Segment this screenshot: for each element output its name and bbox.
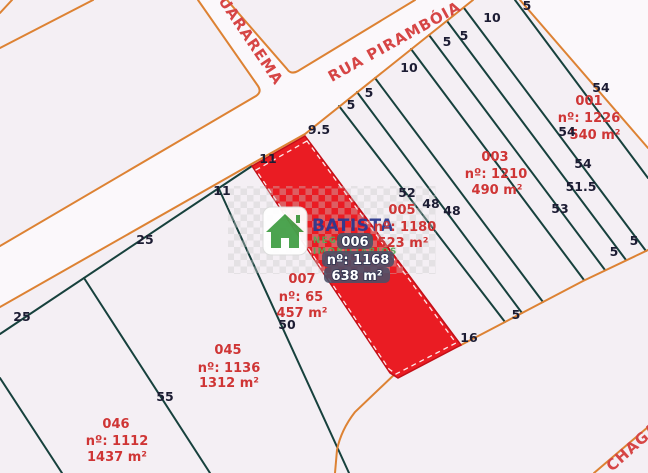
dim-label: 25 <box>136 232 153 247</box>
dim-label: 54 <box>592 80 610 95</box>
dim-label: 25 <box>13 309 30 324</box>
dim-label: 52 <box>398 185 415 200</box>
dim-label: 5 <box>460 28 469 43</box>
svg-text:540 m²: 540 m² <box>570 128 621 143</box>
dim-label: 54 <box>574 156 592 171</box>
dim-label: 10 <box>400 60 418 75</box>
dim-label: 10 <box>483 10 501 25</box>
svg-text:003: 003 <box>481 150 508 165</box>
svg-text:1437 m²: 1437 m² <box>87 450 147 465</box>
svg-text:523 m²: 523 m² <box>378 236 429 251</box>
dim-label: 5 <box>512 307 521 322</box>
dim-label: 11 <box>259 151 276 166</box>
svg-text:005: 005 <box>388 203 415 218</box>
cadastral-map: BATISTA NEGÓCIOS IMOBILIÁRIOS GUARAREMA … <box>0 0 648 473</box>
dim-label: 51.5 <box>566 179 597 194</box>
dim-label: 5 <box>630 233 639 248</box>
dim-label: 11 <box>213 183 230 198</box>
svg-text:nº: 65: nº: 65 <box>279 290 323 305</box>
dim-label: 5 <box>347 97 356 112</box>
dim-label: 55 <box>156 389 173 404</box>
dim-label: 5 <box>365 85 374 100</box>
dim-label: 16 <box>460 330 478 345</box>
svg-text:nº: 1168: nº: 1168 <box>327 253 390 268</box>
svg-text:1312 m²: 1312 m² <box>199 376 259 391</box>
dim-label: 5 <box>610 244 619 259</box>
svg-text:nº: 1180: nº: 1180 <box>374 220 437 235</box>
dim-label: 54 <box>558 124 576 139</box>
svg-text:046: 046 <box>102 417 129 432</box>
dim-label: 5 <box>443 34 452 49</box>
dim-label: 48 <box>422 196 439 211</box>
svg-text:007: 007 <box>288 272 315 287</box>
dim-label: 50 <box>278 317 296 332</box>
svg-text:045: 045 <box>214 343 241 358</box>
dim-label: 9.5 <box>308 122 330 137</box>
svg-text:001: 001 <box>575 94 602 109</box>
dim-label: 5 <box>523 0 532 13</box>
svg-text:490 m²: 490 m² <box>472 183 523 198</box>
svg-text:nº: 1136: nº: 1136 <box>198 361 261 376</box>
dim-label: 48 <box>443 203 460 218</box>
svg-text:nº: 1210: nº: 1210 <box>465 167 528 182</box>
svg-text:638 m²: 638 m² <box>332 269 383 284</box>
dim-label: 53 <box>551 201 568 216</box>
svg-text:006: 006 <box>341 235 368 250</box>
svg-text:nº: 1112: nº: 1112 <box>86 434 149 449</box>
